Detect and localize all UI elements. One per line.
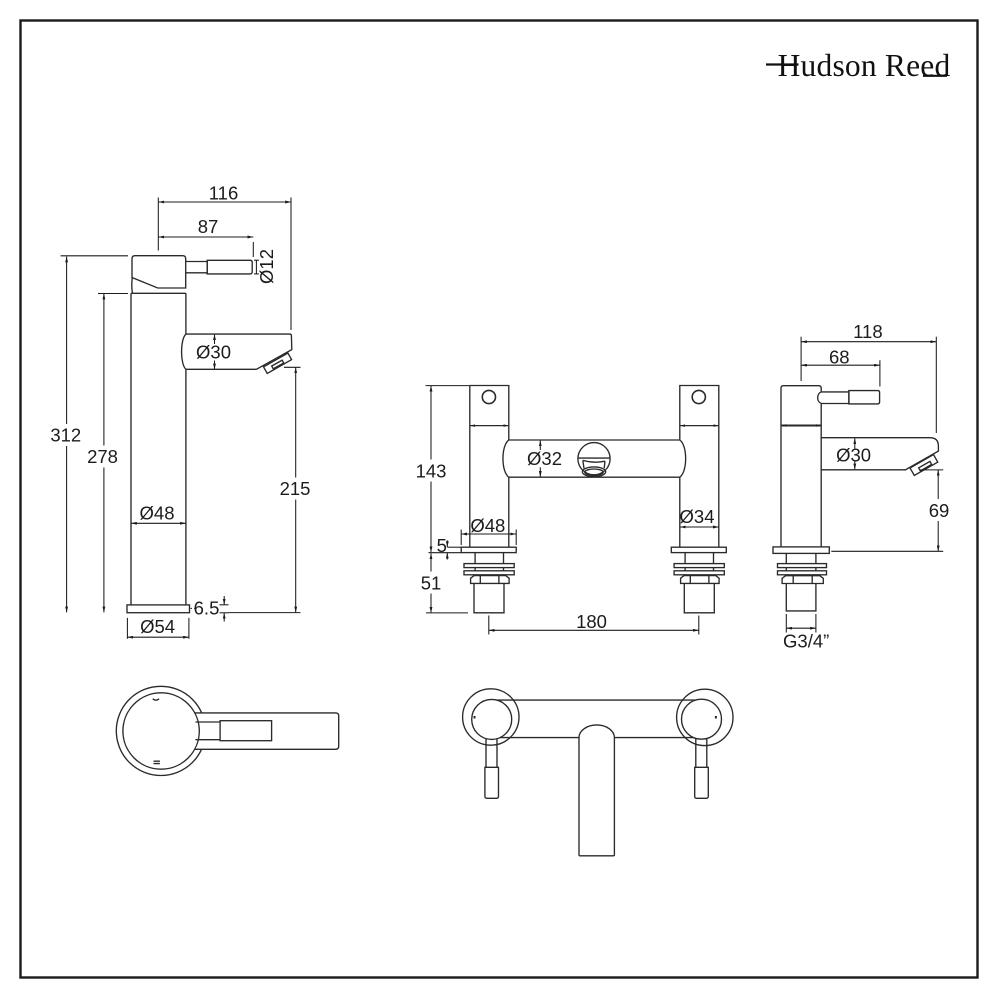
svg-text:Ø30: Ø30 xyxy=(836,444,871,465)
svg-text:87: 87 xyxy=(198,216,219,237)
svg-text:69: 69 xyxy=(929,500,950,521)
svg-text:Ø12: Ø12 xyxy=(256,249,277,284)
svg-text:G3/4”: G3/4” xyxy=(783,630,829,651)
svg-text:143: 143 xyxy=(416,460,447,481)
svg-text:5: 5 xyxy=(437,535,447,556)
svg-text:Ø48: Ø48 xyxy=(140,502,175,523)
svg-text:6.5: 6.5 xyxy=(194,598,220,619)
svg-text:Ø30: Ø30 xyxy=(196,342,231,363)
svg-text:Ø54: Ø54 xyxy=(140,616,175,637)
svg-text:312: 312 xyxy=(50,425,81,446)
svg-text:68: 68 xyxy=(829,346,850,367)
svg-text:51: 51 xyxy=(421,573,442,594)
svg-text:116: 116 xyxy=(209,183,239,204)
svg-text:Ø34: Ø34 xyxy=(680,506,715,527)
svg-text:215: 215 xyxy=(280,478,311,499)
svg-text:Hudson Reed: Hudson Reed xyxy=(778,48,951,83)
svg-text:278: 278 xyxy=(87,446,118,467)
svg-text:Ø48: Ø48 xyxy=(470,515,505,536)
svg-text:180: 180 xyxy=(576,611,607,632)
svg-text:118: 118 xyxy=(853,321,883,342)
svg-text:Ø32: Ø32 xyxy=(527,448,562,469)
